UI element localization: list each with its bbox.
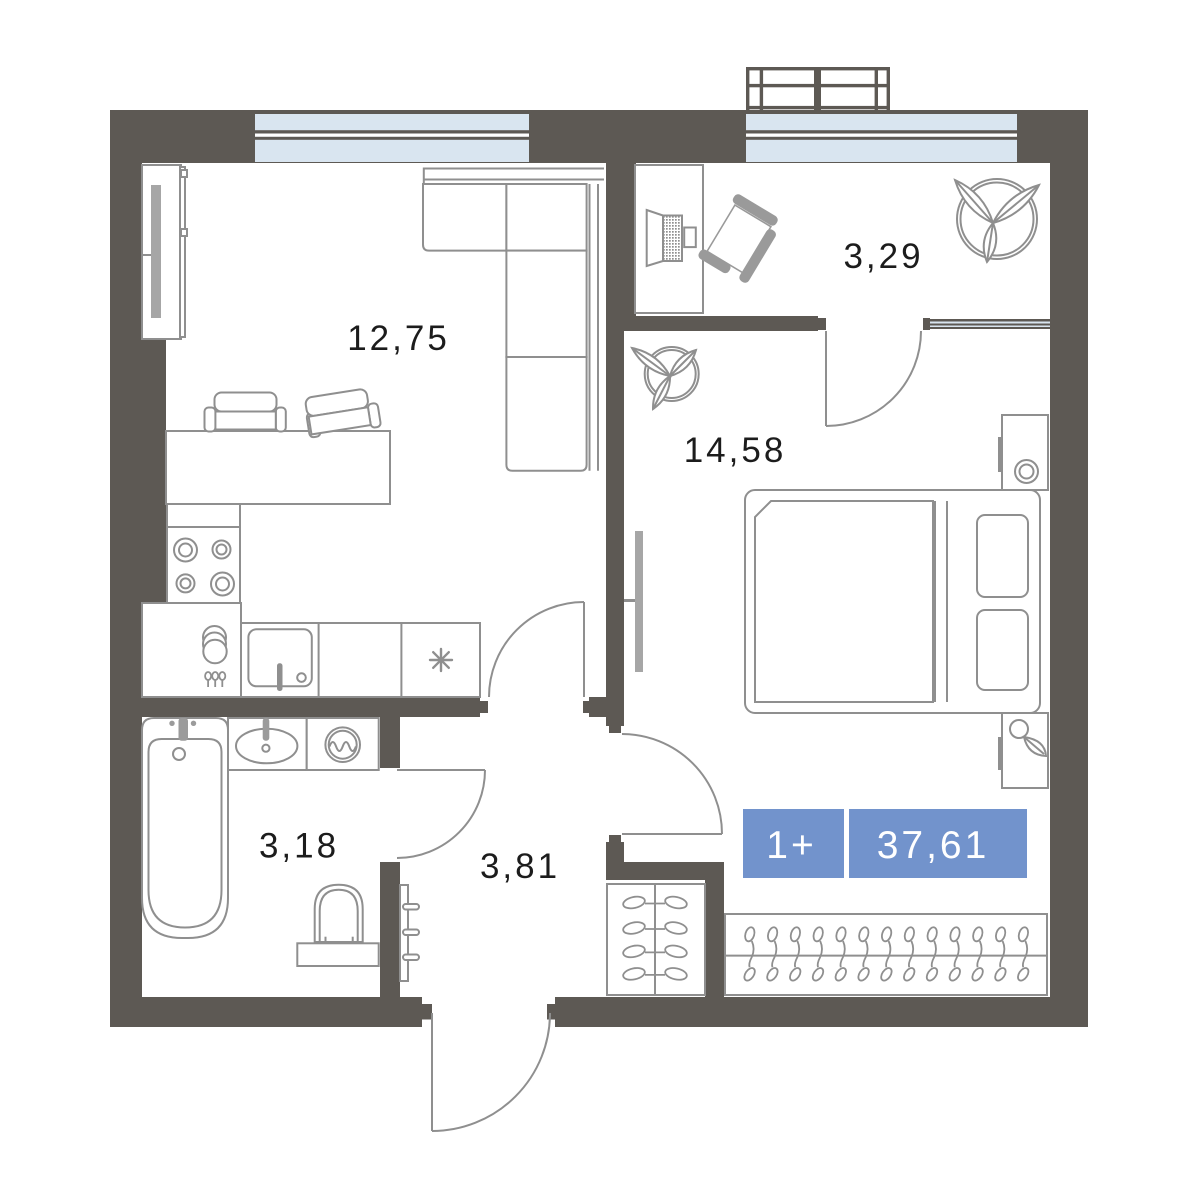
svg-text:1+: 1+ xyxy=(766,824,816,867)
svg-text:12,75: 12,75 xyxy=(347,319,450,358)
svg-text:3,18: 3,18 xyxy=(259,827,339,866)
svg-text:3,29: 3,29 xyxy=(843,237,923,276)
svg-text:3,81: 3,81 xyxy=(480,847,560,886)
svg-text:37,61: 37,61 xyxy=(877,824,990,867)
svg-text:14,58: 14,58 xyxy=(684,431,787,470)
